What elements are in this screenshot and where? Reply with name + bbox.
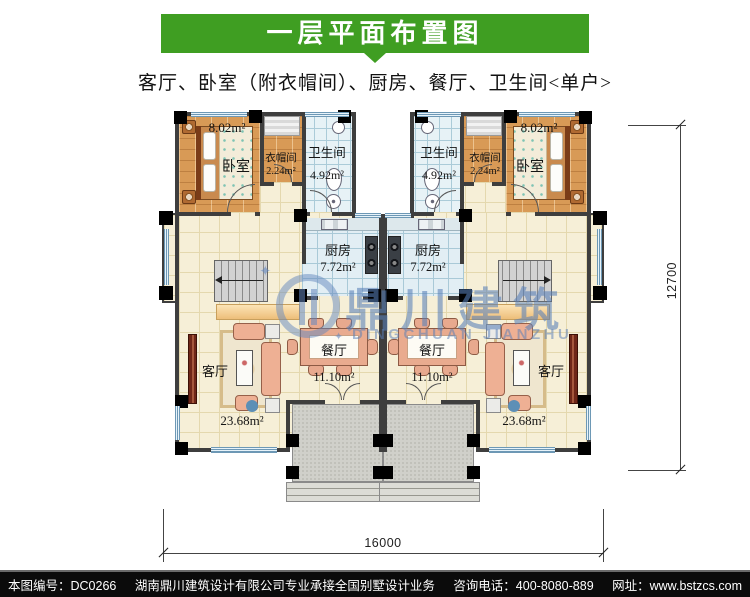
column: [286, 434, 299, 447]
window: [211, 447, 277, 453]
bed-headboard: [196, 126, 201, 200]
stair-arrow-head: [544, 276, 551, 284]
dimension-height: 12700: [665, 258, 679, 303]
cloakroom-area-label: 2.24m²: [260, 166, 302, 177]
bedroom-label: 卧室: [507, 156, 553, 176]
sofa-loveseat: [233, 323, 265, 340]
wall: [352, 112, 356, 218]
wall: [535, 212, 587, 216]
bed-headboard: [565, 126, 570, 200]
window: [519, 112, 575, 117]
dining-chair: [287, 339, 298, 355]
window: [175, 406, 180, 440]
side-table: [486, 324, 501, 339]
wall: [506, 212, 511, 216]
cloakroom-area-label: 2.24m²: [464, 166, 506, 177]
kitchen-label: 厨房: [394, 240, 462, 259]
bathroom-label: 卫生间: [303, 142, 351, 161]
window: [417, 112, 461, 117]
column: [294, 209, 307, 222]
column: [294, 289, 307, 302]
light-well-recess: [383, 112, 410, 214]
window: [586, 406, 591, 440]
bedroom-label: 卧室: [213, 156, 259, 176]
column: [175, 442, 188, 455]
stair-direction-arrow: [221, 280, 263, 281]
wall: [414, 212, 434, 216]
phone-line: 咨询电话：400-8080-889: [453, 575, 593, 594]
wall: [492, 182, 506, 186]
wall: [260, 182, 274, 186]
stair-direction-arrow: [503, 280, 545, 281]
hall-floor: [260, 182, 302, 212]
column: [174, 111, 187, 124]
wall: [332, 212, 352, 216]
bedroom-area-label: 8.02m²: [197, 120, 257, 136]
window: [305, 112, 349, 117]
dimension-line-right: [680, 125, 681, 470]
nightstand: [182, 190, 196, 204]
window: [164, 229, 169, 285]
wall: [302, 112, 306, 218]
website-line: 网址：www.bstzcs.com: [612, 575, 742, 594]
wardrobe: [264, 116, 300, 136]
dimension-line-bottom: [163, 553, 603, 554]
floor-plant: [508, 400, 520, 412]
wall: [441, 400, 476, 404]
dimension-width: 16000: [163, 536, 603, 550]
kitchen-area-label: 7.72m²: [394, 260, 462, 275]
bathroom-label: 卫生间: [415, 142, 463, 161]
title-pointer-triangle: [364, 53, 386, 63]
bathroom-area-label: 4.92m²: [415, 168, 463, 183]
entry-porch-platform: [292, 404, 383, 482]
column: [579, 111, 592, 124]
wall: [383, 400, 406, 404]
duplex-unit: 8.02m² 卧室 衣帽间 2.24m² 卫生间 4.92m² 厨房 7.72m…: [383, 112, 591, 504]
column: [467, 466, 480, 479]
sofa-three-seat: [261, 342, 281, 396]
cloakroom-label: 衣帽间: [260, 150, 302, 165]
side-table: [265, 324, 280, 339]
wall: [255, 212, 260, 216]
window: [191, 112, 247, 117]
column: [380, 466, 393, 479]
side-table: [486, 398, 501, 413]
page-title: 一层平面布置图: [161, 14, 589, 53]
column: [159, 211, 173, 225]
duplex-unit: 8.02m² 卧室 衣帽间 2.24m² 卫生间 4.92m² 厨房 7.72m…: [175, 112, 383, 504]
hall-cabinet: [216, 304, 300, 320]
living-area-label: 23.68m²: [211, 413, 273, 429]
cloakroom-label: 衣帽间: [464, 150, 506, 165]
dining-chair: [468, 339, 479, 355]
floor-plant: [246, 400, 258, 412]
page-subtitle: 客厅、卧室（附衣帽间）、厨房、餐厅、卫生间<单户>: [0, 68, 750, 95]
wall: [290, 400, 325, 404]
column: [385, 289, 398, 302]
drawing-number: 本图编号：DC0266: [8, 575, 116, 594]
stair-arrow-head: [215, 276, 222, 284]
footer-bar: 本图编号：DC0266 湖南鼎川建筑设计有限公司专业承接全国别墅设计业务 咨询电…: [0, 570, 750, 597]
kitchen-area-label: 7.72m²: [304, 260, 372, 275]
dining-chair: [367, 339, 378, 355]
column: [593, 211, 607, 225]
wall: [360, 400, 383, 404]
column: [368, 289, 381, 302]
window: [489, 447, 555, 453]
kitchen-sink: [321, 219, 348, 230]
living-label: 客厅: [195, 361, 235, 380]
staircase: [214, 260, 268, 302]
hall-floor: [464, 182, 506, 212]
porch-steps: [379, 482, 480, 502]
living-area-label: 23.68m²: [493, 413, 555, 429]
wall: [179, 212, 231, 216]
dining-label: 餐厅: [407, 340, 457, 359]
column: [467, 434, 480, 447]
wardrobe: [466, 116, 502, 136]
light-well-recess: [356, 112, 383, 214]
bedroom-area-label: 8.02m²: [509, 120, 569, 136]
side-table: [265, 398, 280, 413]
porch-steps: [286, 482, 387, 502]
hall-cabinet: [466, 304, 550, 320]
sofa-loveseat: [501, 323, 533, 340]
coffee-table: [236, 350, 253, 386]
party-wall: [383, 214, 387, 452]
coffee-table: [513, 350, 530, 386]
extension-line: [603, 509, 604, 562]
floor-plan-page: 一层平面布置图 客厅、卧室（附衣帽间）、厨房、餐厅、卫生间<单户>: [0, 0, 750, 597]
column: [159, 286, 173, 300]
living-label: 客厅: [531, 361, 571, 380]
column: [380, 434, 393, 447]
column: [578, 442, 591, 455]
column: [459, 209, 472, 222]
company-line: 湖南鼎川建筑设计有限公司专业承接全国别墅设计业务: [135, 575, 435, 594]
window: [385, 213, 411, 218]
dimension-width-value: 16000: [359, 536, 406, 550]
dining-area-label: 11.10m²: [389, 370, 475, 385]
bathroom-area-label: 4.92m²: [303, 168, 351, 183]
wall: [410, 112, 414, 218]
dining-label: 餐厅: [309, 340, 359, 359]
column: [286, 466, 299, 479]
wall: [460, 112, 464, 218]
kitchen-label: 厨房: [304, 240, 372, 259]
entry-porch-platform: [383, 404, 474, 482]
sofa-three-seat: [485, 342, 505, 396]
kitchen-sink: [418, 219, 445, 230]
column: [459, 289, 472, 302]
window: [355, 213, 381, 218]
window: [597, 229, 602, 285]
column: [593, 286, 607, 300]
dining-area-label: 11.10m²: [291, 370, 377, 385]
nightstand: [570, 190, 584, 204]
